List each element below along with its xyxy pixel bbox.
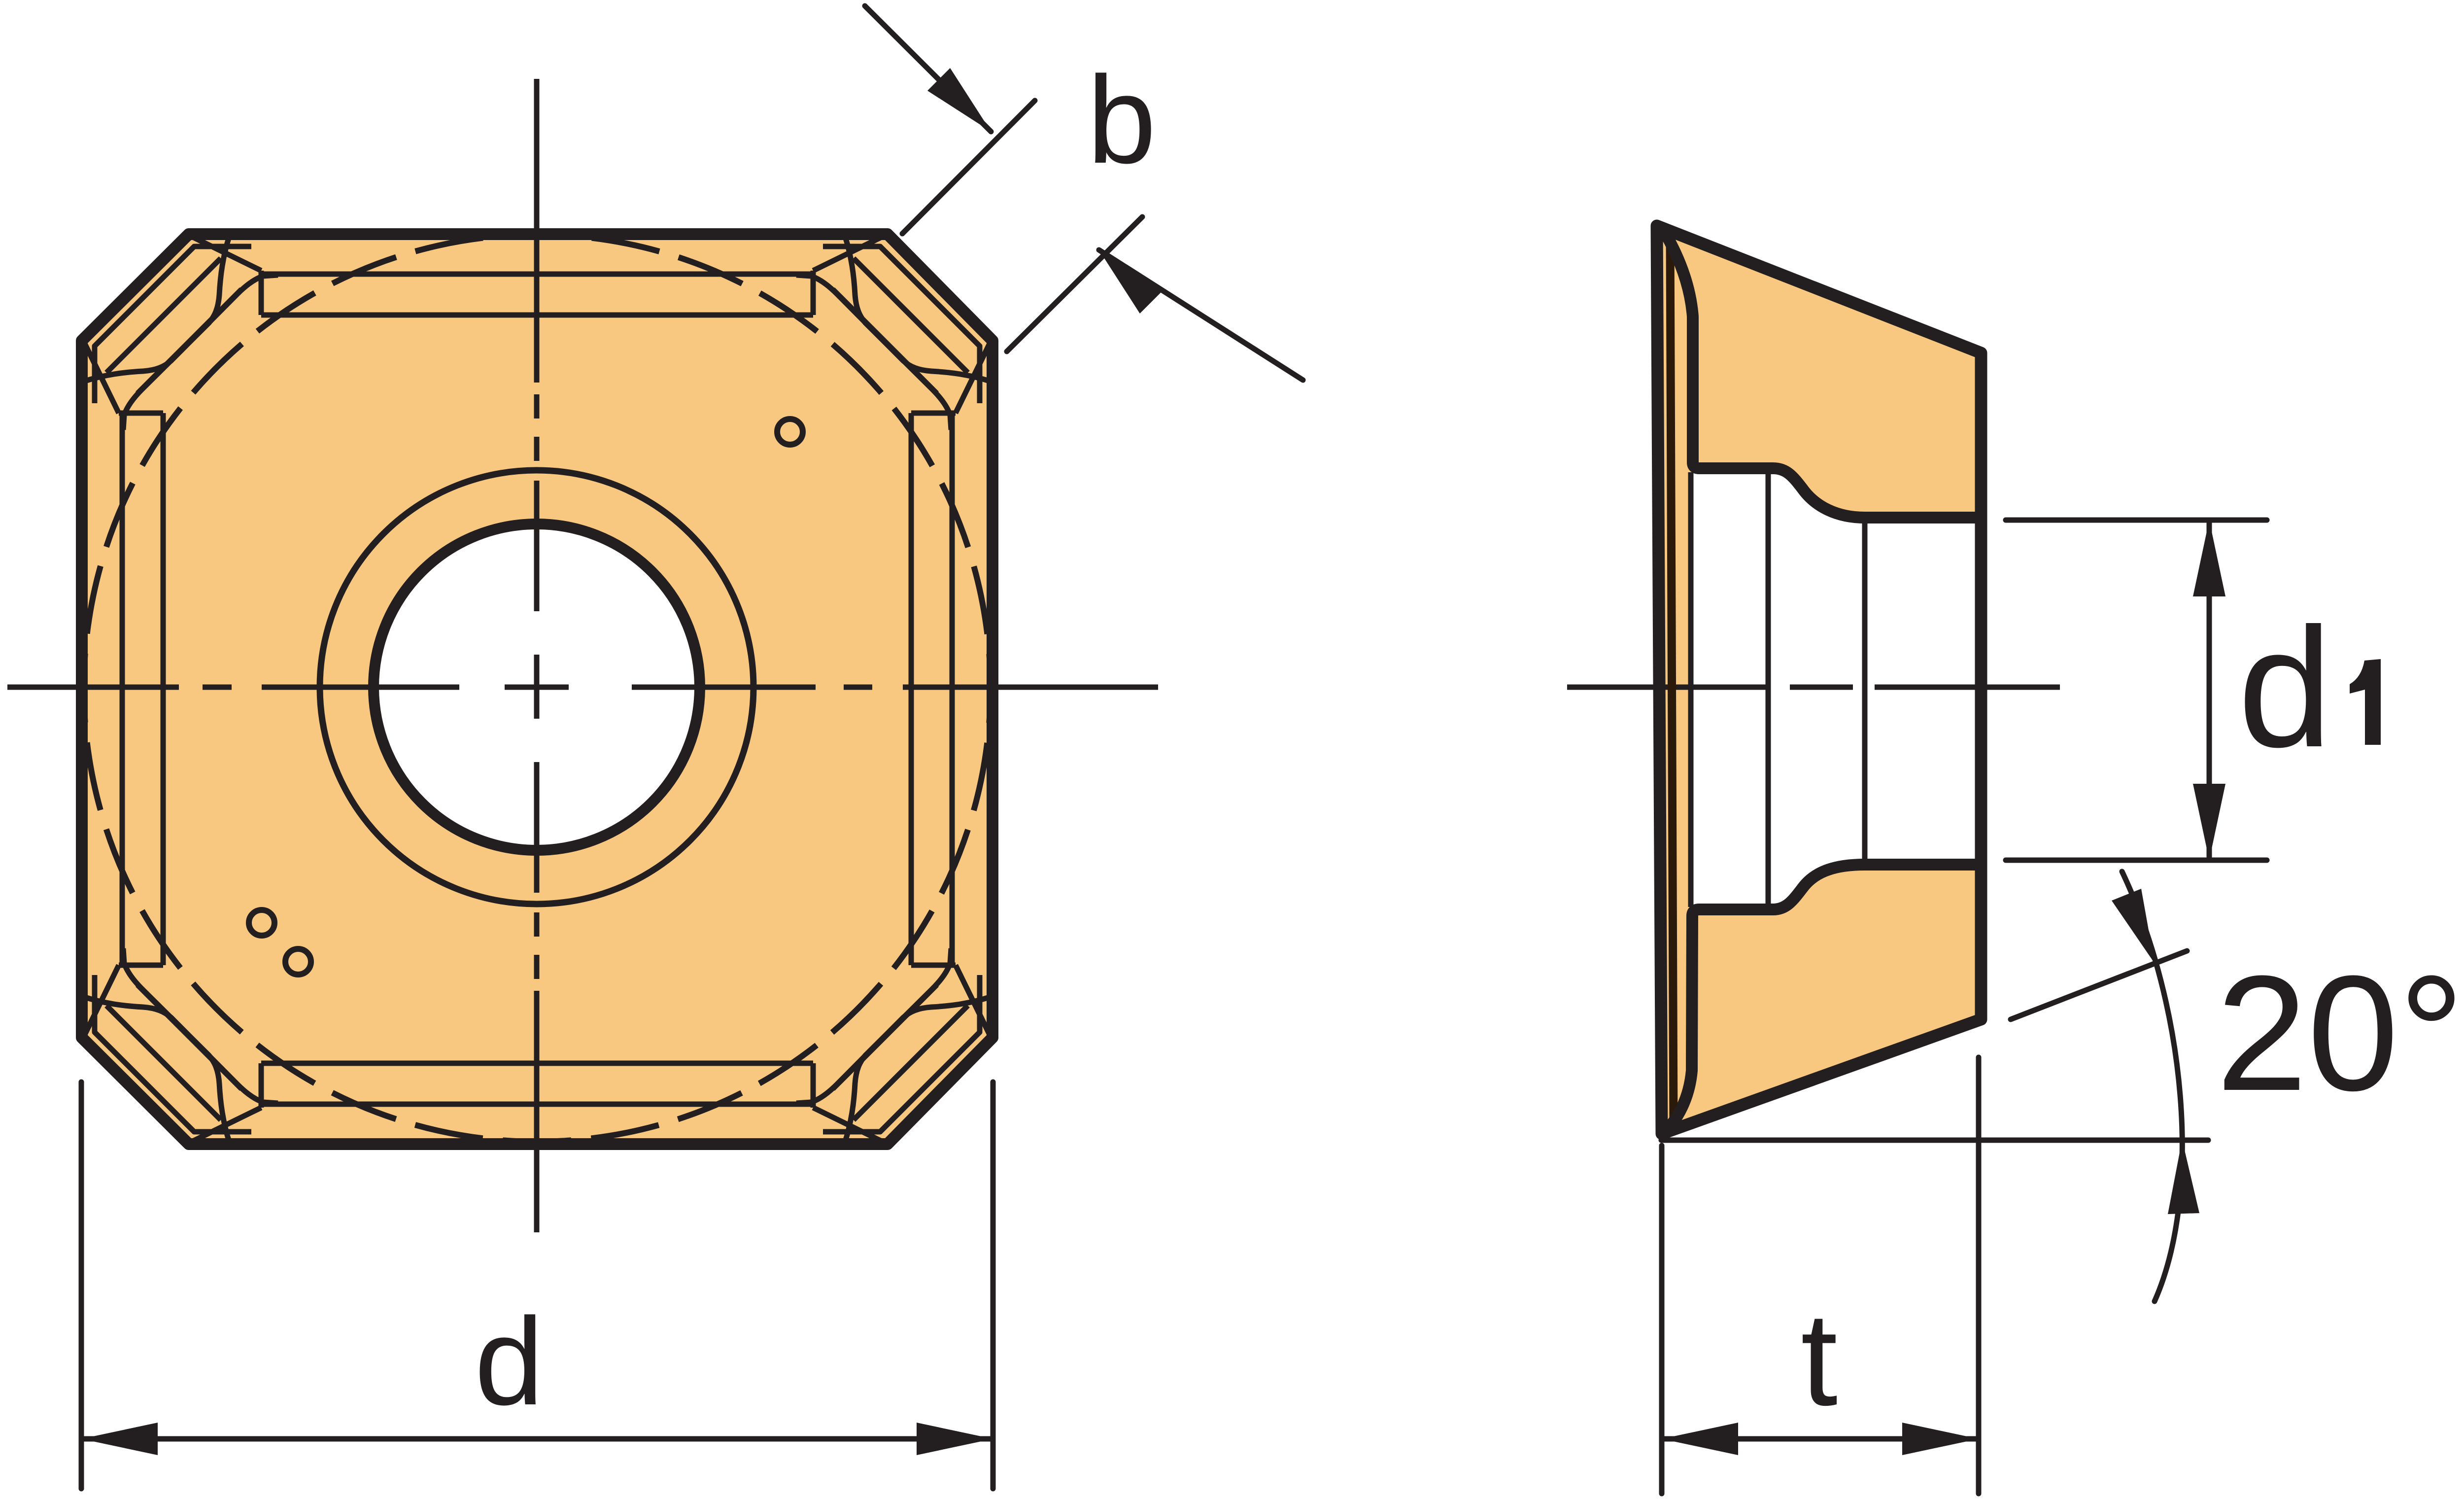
svg-text:d: d xyxy=(2238,593,2332,783)
svg-text:b: b xyxy=(1087,51,1156,189)
svg-text:t: t xyxy=(1801,1285,1838,1433)
svg-text:20°: 20° xyxy=(2216,941,2464,1125)
svg-text:d: d xyxy=(475,1292,544,1431)
